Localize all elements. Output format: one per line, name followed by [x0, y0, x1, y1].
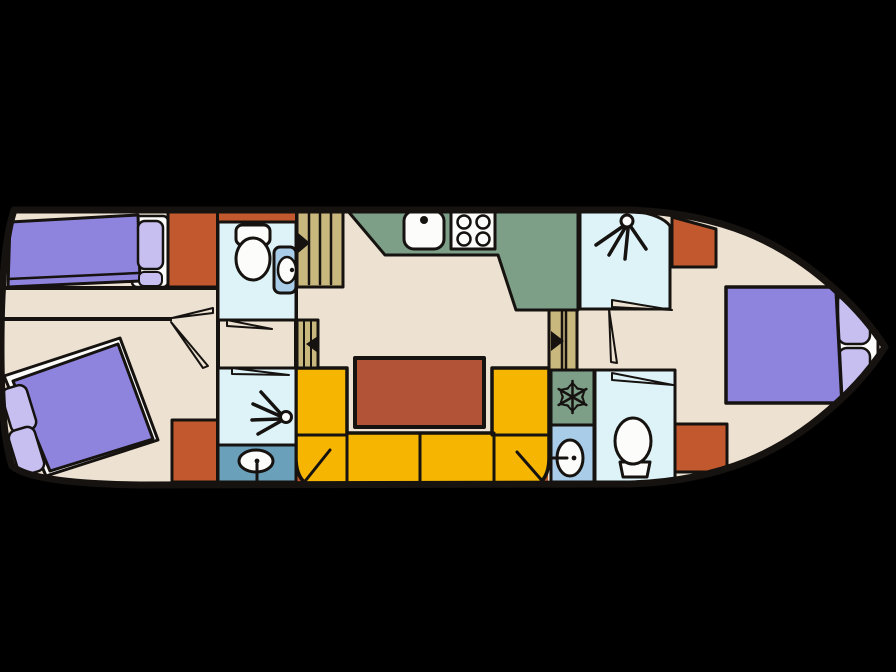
toilet-bowl — [615, 418, 651, 464]
faucet-dot-icon — [420, 216, 428, 224]
burner-icon — [458, 216, 471, 229]
aft-wardrobe-top — [168, 211, 218, 287]
spray-line — [252, 419, 280, 420]
galley-washbasin — [551, 425, 594, 482]
saloon — [296, 358, 549, 490]
aft-wc — [218, 210, 296, 329]
bow-wardrobe-bottom — [675, 424, 727, 472]
faucet-dot-icon — [572, 456, 577, 461]
bow-bed-blanket — [726, 287, 842, 403]
burner-icon — [477, 216, 490, 229]
bow-shower-room — [580, 211, 672, 310]
burner-icon — [458, 233, 471, 246]
boat-floor-plan — [0, 0, 896, 672]
saloon-steps-port — [297, 320, 318, 368]
faucet-dot-icon — [290, 268, 294, 272]
saloon-steps-starboard — [549, 310, 577, 370]
toilet-bowl — [236, 238, 270, 280]
aft-shower-room — [218, 368, 296, 482]
companionway-steps-aft — [297, 209, 343, 287]
burner-icon — [477, 233, 490, 246]
shower-head — [621, 215, 633, 227]
fridge-freezer — [551, 370, 594, 425]
dining-table — [355, 358, 484, 427]
single-bed-pillow — [138, 221, 163, 269]
aft-wardrobe-bottom — [172, 420, 218, 482]
bow-wc — [595, 370, 675, 482]
single-bed-pillow-small — [139, 272, 162, 286]
